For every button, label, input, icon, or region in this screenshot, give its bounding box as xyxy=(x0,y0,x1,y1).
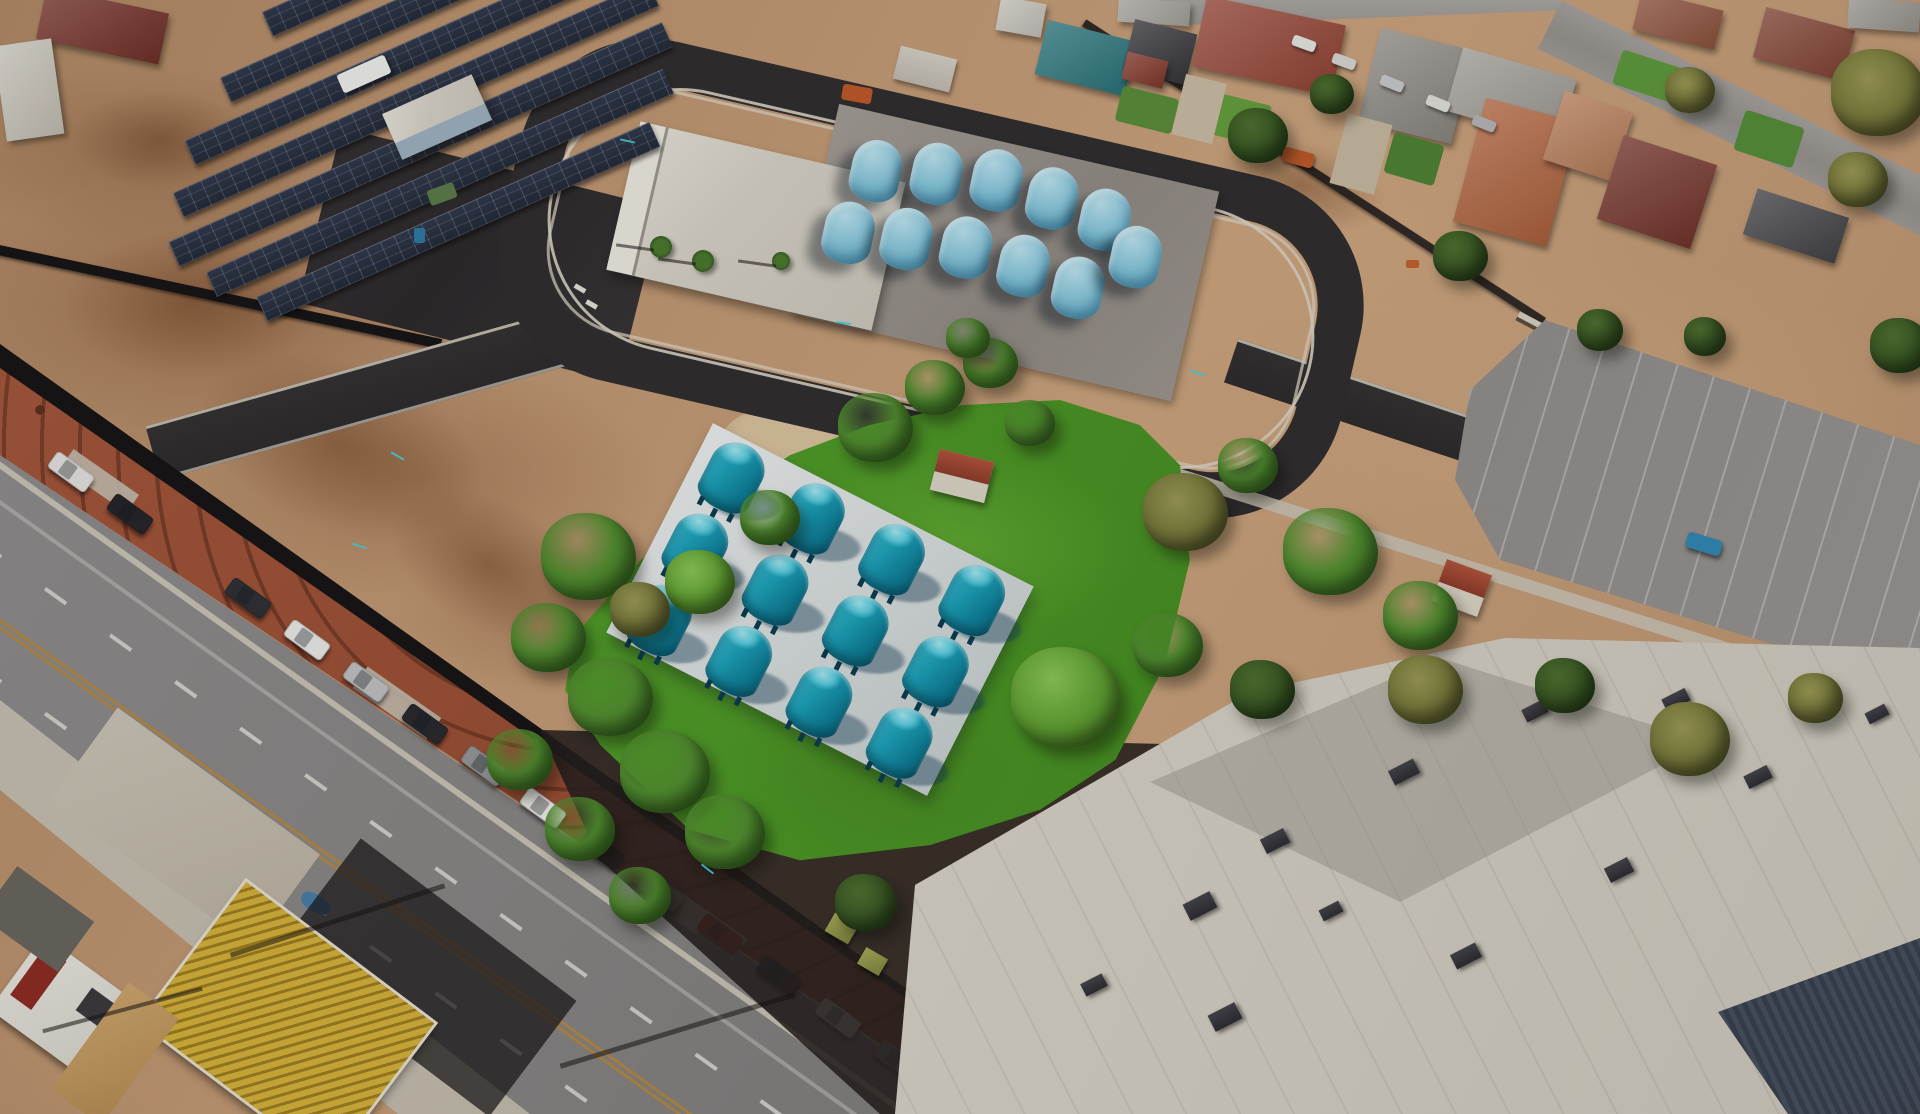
existing-water-tank xyxy=(993,230,1055,301)
blue-barrel xyxy=(414,228,425,243)
orange-marker xyxy=(1406,260,1419,268)
palm-tree xyxy=(650,236,672,258)
existing-water-tank xyxy=(966,145,1028,216)
palm-tree xyxy=(692,250,714,272)
existing-water-tank xyxy=(845,136,907,207)
existing-water-tank xyxy=(1021,163,1083,234)
proposed-water-tank xyxy=(896,627,978,715)
palm-tree xyxy=(772,252,790,270)
existing-water-tank xyxy=(906,138,968,209)
proposed-water-tank xyxy=(656,504,738,592)
proposed-water-tank xyxy=(736,545,818,633)
existing-water-tank xyxy=(876,203,938,274)
aerial-photo xyxy=(0,0,1920,1114)
proposed-water-tank xyxy=(816,586,898,674)
existing-water-tank xyxy=(935,212,997,283)
existing-water-tank xyxy=(1047,252,1109,323)
